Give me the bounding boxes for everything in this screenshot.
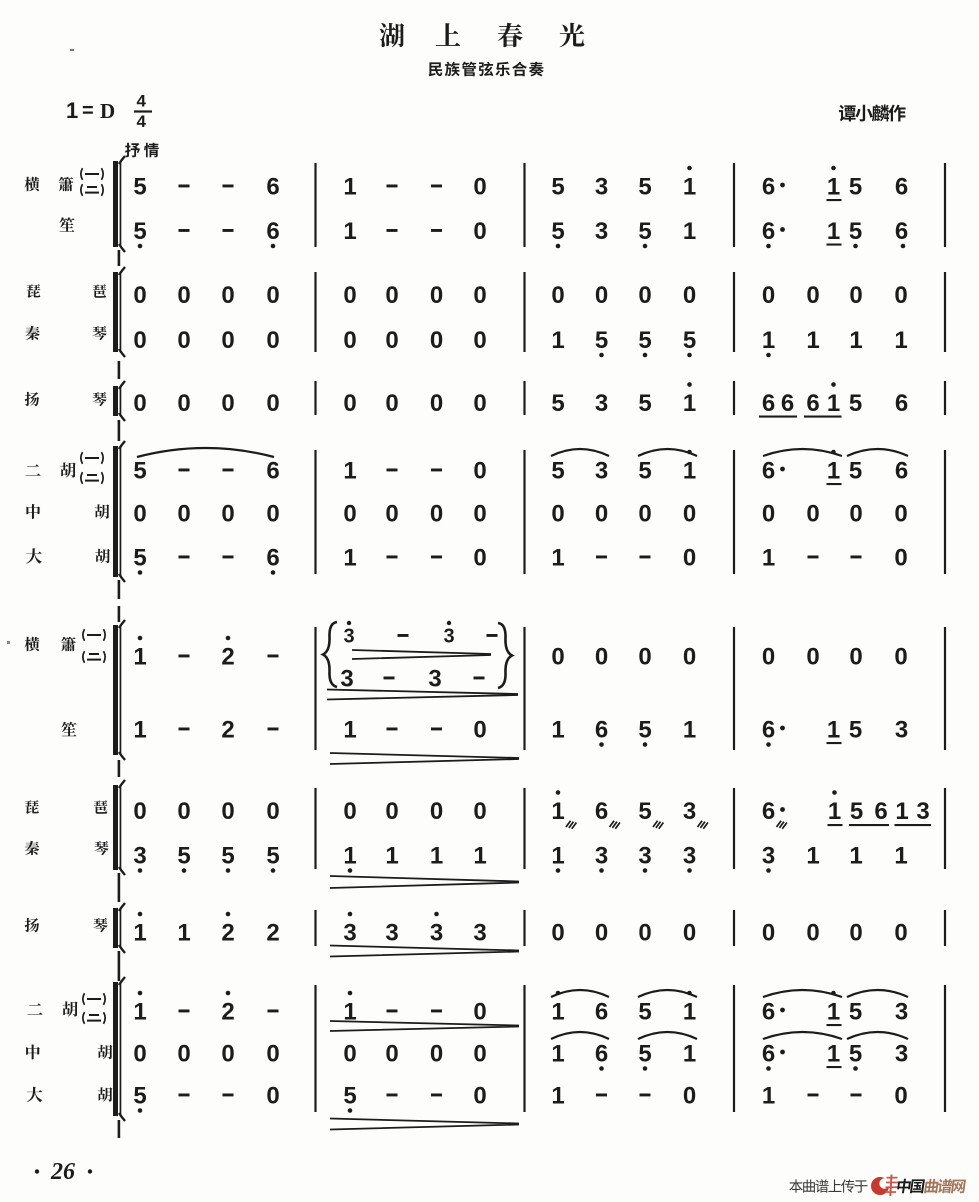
- svg-text:6: 6: [266, 218, 279, 245]
- svg-text:0: 0: [473, 327, 486, 354]
- svg-text:0: 0: [385, 1041, 398, 1068]
- svg-text:0: 0: [430, 1041, 443, 1068]
- svg-text:2: 2: [221, 644, 234, 671]
- svg-text:1: 1: [343, 717, 356, 744]
- svg-text:0: 0: [806, 920, 819, 947]
- svg-text:0: 0: [385, 501, 398, 528]
- svg-text:1: 1: [828, 798, 841, 825]
- svg-text:0: 0: [551, 282, 564, 309]
- svg-text:26: 26: [50, 1159, 75, 1185]
- svg-text:6: 6: [895, 390, 908, 417]
- svg-text:5: 5: [177, 843, 190, 870]
- svg-text:5: 5: [551, 174, 564, 201]
- svg-text:1: 1: [806, 843, 819, 870]
- svg-text:5: 5: [850, 798, 863, 825]
- svg-text:1: 1: [551, 1083, 564, 1110]
- svg-text:0: 0: [221, 282, 234, 309]
- svg-text:5: 5: [551, 458, 564, 485]
- svg-text:0: 0: [221, 390, 234, 417]
- svg-text:1: 1: [133, 920, 146, 947]
- svg-text:3: 3: [683, 798, 696, 825]
- svg-text:0: 0: [683, 282, 696, 309]
- svg-text:6: 6: [762, 218, 775, 245]
- svg-text:5: 5: [638, 390, 651, 417]
- svg-text:0: 0: [894, 644, 907, 671]
- svg-text:3: 3: [683, 843, 696, 870]
- svg-text:0: 0: [894, 920, 907, 947]
- svg-text:5: 5: [849, 458, 862, 485]
- svg-text:3: 3: [595, 390, 608, 417]
- svg-text:0: 0: [894, 501, 907, 528]
- svg-text:5: 5: [638, 218, 651, 245]
- svg-text:1: 1: [683, 1041, 696, 1068]
- svg-text:0: 0: [638, 501, 651, 528]
- svg-text:0: 0: [551, 501, 564, 528]
- svg-text:0: 0: [638, 282, 651, 309]
- svg-text:0: 0: [473, 390, 486, 417]
- svg-text:1: 1: [849, 327, 862, 354]
- svg-text:2: 2: [221, 999, 234, 1026]
- svg-text:0: 0: [430, 327, 443, 354]
- svg-text:6: 6: [874, 798, 887, 825]
- svg-text:0: 0: [473, 174, 486, 201]
- svg-text:6: 6: [266, 545, 279, 572]
- svg-text:5: 5: [133, 218, 146, 245]
- svg-text:0: 0: [849, 644, 862, 671]
- svg-text:1: 1: [894, 843, 907, 870]
- svg-text:0: 0: [683, 545, 696, 572]
- svg-text:1: 1: [683, 218, 696, 245]
- svg-text:5: 5: [638, 1041, 651, 1068]
- svg-text:0: 0: [266, 327, 279, 354]
- svg-text:0: 0: [133, 282, 146, 309]
- svg-text:0: 0: [430, 501, 443, 528]
- svg-text:0: 0: [849, 920, 862, 947]
- svg-text:1: 1: [849, 843, 862, 870]
- svg-text:0: 0: [473, 1041, 486, 1068]
- svg-text:6: 6: [781, 390, 794, 417]
- svg-text:0: 0: [762, 282, 775, 309]
- svg-text:0: 0: [133, 390, 146, 417]
- svg-text:3: 3: [340, 666, 353, 693]
- svg-text:0: 0: [473, 999, 486, 1026]
- svg-text:1: 1: [551, 999, 564, 1026]
- svg-text:1: 1: [343, 843, 356, 870]
- svg-text:0: 0: [221, 1041, 234, 1068]
- svg-text:0: 0: [266, 501, 279, 528]
- svg-text:1: 1: [806, 327, 819, 354]
- svg-text:3: 3: [133, 843, 146, 870]
- svg-text:0: 0: [266, 390, 279, 417]
- svg-text:0: 0: [762, 644, 775, 671]
- svg-text:0: 0: [551, 644, 564, 671]
- svg-text:3: 3: [895, 1041, 908, 1068]
- svg-text:0: 0: [343, 798, 356, 825]
- svg-text:0: 0: [473, 717, 486, 744]
- svg-text:1: 1: [827, 717, 840, 744]
- svg-text:5: 5: [133, 174, 146, 201]
- svg-text:5: 5: [849, 174, 862, 201]
- svg-text:6: 6: [895, 174, 908, 201]
- svg-text:0: 0: [177, 282, 190, 309]
- svg-text:3: 3: [473, 920, 486, 947]
- svg-text:1: 1: [551, 545, 564, 572]
- svg-text:0: 0: [221, 798, 234, 825]
- svg-text:0: 0: [221, 327, 234, 354]
- svg-text:1: 1: [762, 545, 775, 572]
- svg-text:1: 1: [827, 218, 840, 245]
- svg-text:0: 0: [343, 1041, 356, 1068]
- svg-text:0: 0: [849, 501, 862, 528]
- svg-text:3: 3: [385, 920, 398, 947]
- svg-text:0: 0: [683, 920, 696, 947]
- svg-text:6: 6: [595, 1041, 608, 1068]
- svg-text:0: 0: [473, 501, 486, 528]
- svg-text:6: 6: [806, 390, 819, 417]
- svg-text:0: 0: [343, 327, 356, 354]
- svg-text:3: 3: [343, 626, 354, 648]
- svg-text:5: 5: [266, 843, 279, 870]
- svg-text:0: 0: [266, 282, 279, 309]
- svg-text:0: 0: [894, 1083, 907, 1110]
- svg-text:1: 1: [827, 999, 840, 1026]
- svg-text:6: 6: [595, 999, 608, 1026]
- svg-text:5: 5: [343, 1083, 356, 1110]
- svg-text:6: 6: [895, 218, 908, 245]
- svg-text:0: 0: [894, 282, 907, 309]
- svg-text:0: 0: [762, 501, 775, 528]
- svg-text:5: 5: [849, 218, 862, 245]
- svg-text:1: 1: [133, 717, 146, 744]
- svg-text:6: 6: [762, 798, 775, 825]
- svg-text:5: 5: [638, 999, 651, 1026]
- svg-text:1: 1: [177, 920, 190, 947]
- svg-text:1: 1: [66, 98, 78, 123]
- svg-text:5: 5: [683, 327, 696, 354]
- svg-text:5: 5: [551, 390, 564, 417]
- svg-text:1: 1: [894, 327, 907, 354]
- svg-text:3: 3: [595, 843, 608, 870]
- svg-text:1: 1: [683, 390, 696, 417]
- svg-text:0: 0: [595, 501, 608, 528]
- svg-text:0: 0: [595, 644, 608, 671]
- svg-text:5: 5: [133, 545, 146, 572]
- svg-text:0: 0: [266, 1041, 279, 1068]
- svg-text:0: 0: [177, 1041, 190, 1068]
- svg-text:3: 3: [343, 920, 356, 947]
- svg-text:0: 0: [221, 501, 234, 528]
- svg-text:5: 5: [849, 1041, 862, 1068]
- svg-text:1: 1: [683, 999, 696, 1026]
- svg-text:1: 1: [343, 218, 356, 245]
- svg-text:0: 0: [473, 282, 486, 309]
- svg-text:3: 3: [443, 626, 454, 648]
- svg-text:5: 5: [638, 174, 651, 201]
- svg-text:D: D: [100, 99, 115, 123]
- svg-text:2: 2: [221, 717, 234, 744]
- svg-text:0: 0: [430, 798, 443, 825]
- svg-text:5: 5: [595, 327, 608, 354]
- svg-text:6: 6: [762, 174, 775, 201]
- svg-text:3: 3: [428, 666, 441, 693]
- svg-text:0: 0: [683, 1083, 696, 1110]
- svg-text:3: 3: [595, 218, 608, 245]
- svg-text:0: 0: [385, 327, 398, 354]
- svg-text:4: 4: [137, 92, 147, 111]
- svg-text:6: 6: [266, 458, 279, 485]
- svg-text:3: 3: [430, 920, 443, 947]
- svg-text:1: 1: [827, 1041, 840, 1068]
- svg-text:1: 1: [551, 327, 564, 354]
- svg-text:5: 5: [638, 458, 651, 485]
- svg-text:3: 3: [895, 999, 908, 1026]
- svg-text:2: 2: [221, 920, 234, 947]
- svg-text:0: 0: [133, 798, 146, 825]
- svg-text:6: 6: [762, 1041, 775, 1068]
- svg-text:0: 0: [638, 920, 651, 947]
- svg-text:4: 4: [137, 112, 147, 131]
- svg-text:0: 0: [430, 390, 443, 417]
- svg-text:0: 0: [266, 798, 279, 825]
- svg-text:0: 0: [806, 501, 819, 528]
- svg-text:5: 5: [221, 843, 234, 870]
- svg-text:0: 0: [473, 798, 486, 825]
- svg-text:5: 5: [849, 390, 862, 417]
- svg-text:0: 0: [595, 282, 608, 309]
- svg-text:3: 3: [916, 798, 929, 825]
- svg-text:6: 6: [762, 458, 775, 485]
- svg-text:1: 1: [683, 717, 696, 744]
- svg-text:0: 0: [266, 1083, 279, 1110]
- svg-text:1: 1: [762, 327, 775, 354]
- svg-text:5: 5: [849, 999, 862, 1026]
- svg-text:0: 0: [473, 545, 486, 572]
- svg-text:3: 3: [595, 458, 608, 485]
- svg-text:1: 1: [895, 798, 908, 825]
- svg-text:0: 0: [595, 920, 608, 947]
- svg-text:3: 3: [762, 843, 775, 870]
- svg-text:6: 6: [762, 390, 775, 417]
- svg-text:1: 1: [343, 545, 356, 572]
- svg-text:5: 5: [638, 717, 651, 744]
- svg-text:0: 0: [473, 218, 486, 245]
- svg-text:6: 6: [762, 999, 775, 1026]
- svg-text:1: 1: [551, 717, 564, 744]
- svg-text:1: 1: [473, 843, 486, 870]
- svg-text:1: 1: [827, 174, 840, 201]
- svg-text:0: 0: [683, 644, 696, 671]
- svg-text:1: 1: [343, 174, 356, 201]
- svg-text:=: =: [82, 100, 94, 122]
- svg-text:1: 1: [133, 999, 146, 1026]
- svg-text:1: 1: [827, 458, 840, 485]
- svg-text:1: 1: [385, 843, 398, 870]
- svg-text:5: 5: [849, 717, 862, 744]
- svg-text:0: 0: [177, 327, 190, 354]
- svg-text:0: 0: [133, 501, 146, 528]
- svg-text:1: 1: [430, 843, 443, 870]
- svg-text:6: 6: [762, 717, 775, 744]
- svg-text:0: 0: [133, 1041, 146, 1068]
- svg-text:1: 1: [762, 1083, 775, 1110]
- svg-text:1: 1: [683, 458, 696, 485]
- svg-text:2: 2: [266, 920, 279, 947]
- svg-text:6: 6: [595, 717, 608, 744]
- svg-text:0: 0: [385, 798, 398, 825]
- svg-text:0: 0: [343, 501, 356, 528]
- svg-text:0: 0: [551, 920, 564, 947]
- svg-text:1: 1: [133, 644, 146, 671]
- svg-text:5: 5: [133, 458, 146, 485]
- svg-text:5: 5: [133, 1083, 146, 1110]
- svg-text:0: 0: [343, 282, 356, 309]
- svg-text:0: 0: [473, 1083, 486, 1110]
- svg-text:0: 0: [806, 282, 819, 309]
- svg-text:0: 0: [849, 282, 862, 309]
- svg-text:0: 0: [894, 545, 907, 572]
- svg-text:5: 5: [638, 327, 651, 354]
- svg-text:1: 1: [827, 390, 840, 417]
- svg-text:1: 1: [343, 458, 356, 485]
- svg-text:0: 0: [343, 390, 356, 417]
- svg-text:0: 0: [385, 390, 398, 417]
- svg-text:0: 0: [133, 327, 146, 354]
- svg-text:0: 0: [385, 282, 398, 309]
- svg-text:0: 0: [806, 644, 819, 671]
- svg-text:3: 3: [638, 843, 651, 870]
- svg-text:0: 0: [177, 798, 190, 825]
- svg-text:6: 6: [595, 798, 608, 825]
- svg-text:6: 6: [895, 458, 908, 485]
- svg-text:1: 1: [551, 798, 564, 825]
- svg-text:0: 0: [638, 644, 651, 671]
- svg-text:3: 3: [895, 717, 908, 744]
- svg-text:3: 3: [595, 174, 608, 201]
- svg-text:1: 1: [683, 174, 696, 201]
- svg-text:0: 0: [177, 501, 190, 528]
- svg-text:5: 5: [551, 218, 564, 245]
- svg-text:6: 6: [266, 174, 279, 201]
- svg-text:1: 1: [551, 1041, 564, 1068]
- svg-text:0: 0: [683, 501, 696, 528]
- svg-text:0: 0: [473, 458, 486, 485]
- svg-text:0: 0: [430, 282, 443, 309]
- svg-text:0: 0: [762, 920, 775, 947]
- svg-text:5: 5: [638, 798, 651, 825]
- svg-text:1: 1: [551, 843, 564, 870]
- svg-text:0: 0: [177, 390, 190, 417]
